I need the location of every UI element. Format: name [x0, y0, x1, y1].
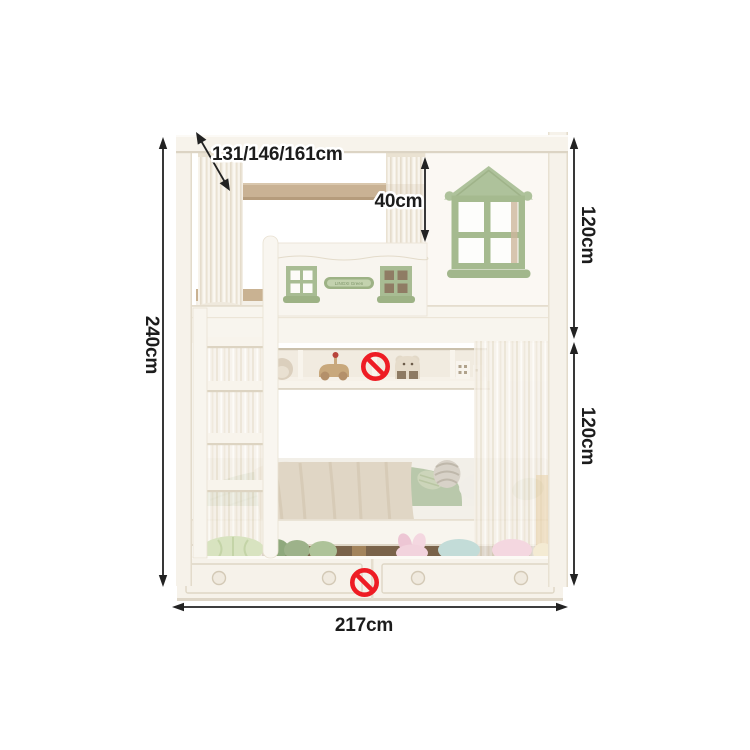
svg-text:120cm: 120cm — [577, 206, 598, 264]
svg-text:240cm: 240cm — [141, 316, 162, 374]
svg-text:217cm: 217cm — [335, 615, 393, 636]
svg-text:131/146/161cm: 131/146/161cm — [212, 144, 343, 165]
svg-text:40cm: 40cm — [375, 191, 423, 212]
svg-text:120cm: 120cm — [577, 407, 598, 465]
svg-text:LINGXI Green: LINGXI Green — [335, 281, 364, 286]
